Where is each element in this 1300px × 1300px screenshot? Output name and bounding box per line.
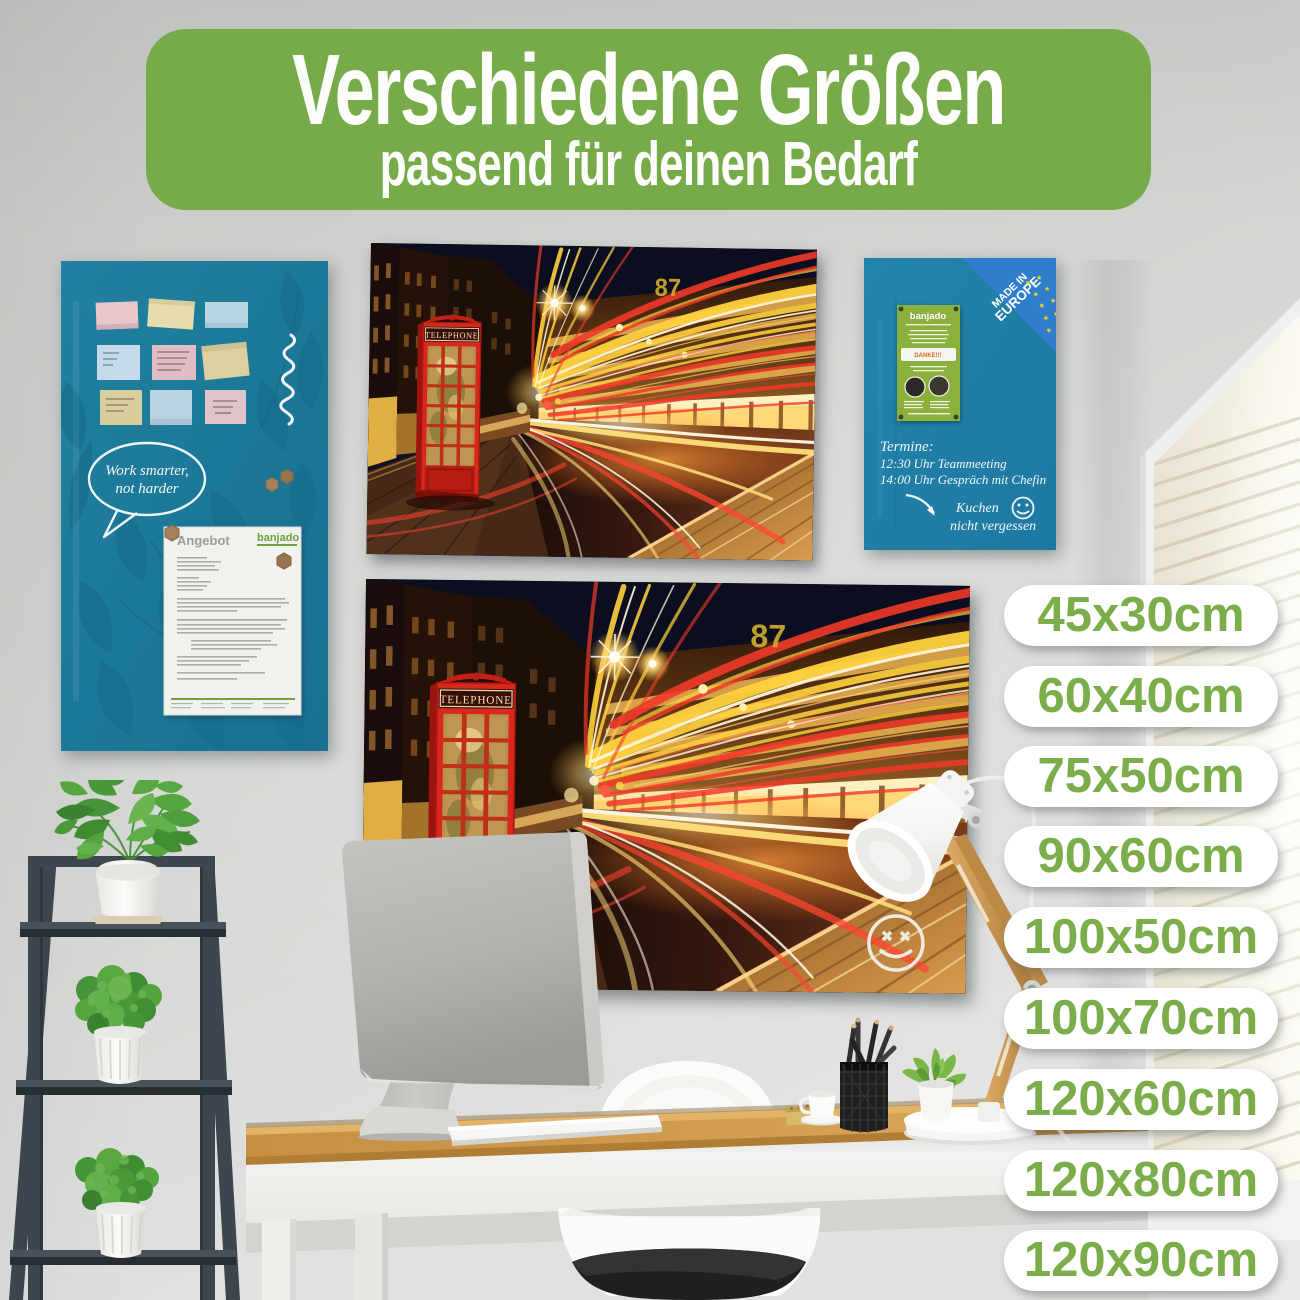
svg-text:Termine:: Termine: [880, 439, 934, 455]
svg-text:★: ★ [1044, 285, 1050, 293]
svg-text:Kuchen: Kuchen [955, 501, 999, 516]
svg-text:★: ★ [1036, 274, 1042, 282]
svg-text:banjado: banjado [257, 532, 299, 544]
svg-text:banjado: banjado [910, 311, 947, 322]
svg-text:Work smarter,: Work smarter, [105, 463, 189, 479]
svg-text:DANKE!!!: DANKE!!! [914, 353, 941, 359]
svg-text:★: ★ [1050, 297, 1056, 305]
svg-text:Angebot: Angebot [177, 533, 230, 548]
svg-text:14:00 Uhr Gespräch mit Chefin: 14:00 Uhr Gespräch mit Chefin [880, 472, 1046, 487]
svg-text:★: ★ [1053, 310, 1056, 318]
svg-text:not harder: not harder [115, 481, 178, 497]
svg-text:12:30 Uhr Teammeeting: 12:30 Uhr Teammeeting [880, 456, 1007, 471]
svg-text:nicht vergessen: nicht vergessen [950, 519, 1036, 534]
